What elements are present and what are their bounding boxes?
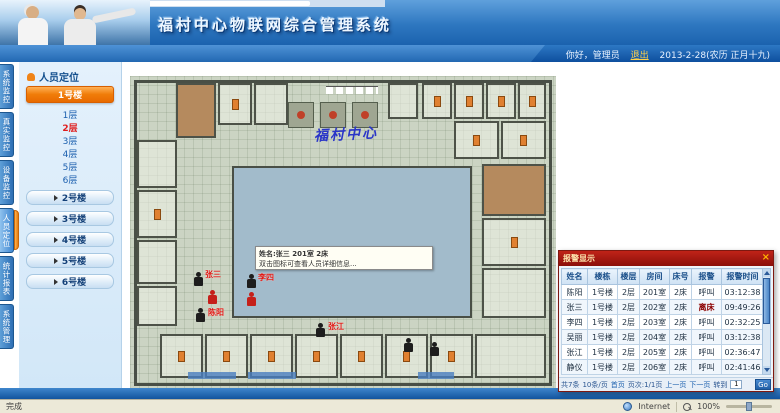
first-page-link[interactable]: 首页: [611, 380, 625, 390]
building-caption: 福村中心: [314, 122, 379, 145]
app-window: 福村中心物联网综合管理系统 你好，管理员 退出 2013-2-28(农历 正月十…: [0, 0, 780, 413]
scroll-up-icon[interactable]: [763, 269, 770, 277]
building-2-button[interactable]: 2号楼: [26, 190, 114, 205]
alarm-table-header: 姓名楼栋楼层房间床号报警报警时间: [562, 269, 764, 285]
status-bar: 完成 Internet 100%: [0, 399, 780, 413]
page-title: 福村中心物联网综合管理系统: [158, 14, 392, 35]
scrollbar-thumb[interactable]: [763, 278, 770, 324]
prev-page-link[interactable]: 上一页: [665, 380, 686, 390]
person-marker-label: 李四: [258, 272, 274, 283]
table-row[interactable]: 静仪1号楼2层206室2床呼叫02:41:46: [562, 360, 764, 375]
room-label-strip: [188, 372, 236, 379]
table-row[interactable]: 张江1号楼2层205室2床呼叫02:36:47: [562, 345, 764, 360]
person-marker[interactable]: [194, 272, 203, 286]
zoom-level: 100%: [697, 402, 720, 411]
nav-tab-system-monitor[interactable]: 系统监控: [0, 64, 14, 109]
person-marker-label: 张三: [205, 269, 221, 280]
floor-item-6[interactable]: 6层: [26, 173, 114, 185]
room: [482, 218, 546, 266]
bed-icon: [178, 351, 185, 362]
total-count: 共7条: [561, 380, 579, 390]
table-icon: [288, 102, 314, 128]
bed-icon: [466, 96, 473, 107]
zone-label: Internet: [638, 402, 670, 411]
building-4-button[interactable]: 4号楼: [26, 232, 114, 247]
floor-item-2[interactable]: 2层: [26, 121, 114, 133]
room: [501, 121, 546, 159]
room: [340, 334, 383, 378]
logout-link[interactable]: 退出: [631, 51, 649, 61]
alarm-popup-titlebar[interactable]: 报警显示 ×: [559, 251, 773, 266]
pagination-bar: 共7条 10条/页 首页 页次:1/1页 上一页 下一页 转到 Go: [559, 377, 773, 391]
plan-cabinets: [326, 86, 378, 94]
room: [388, 83, 418, 119]
tooltip-line2: 双击图标可查看人员详细信息...: [259, 259, 429, 269]
room: [137, 240, 177, 284]
person-marker-alarm[interactable]: [208, 290, 217, 304]
bed-icon: [154, 209, 161, 220]
person-marker-label: 张江: [328, 321, 344, 332]
person-marker[interactable]: [430, 342, 439, 356]
bed-icon: [498, 96, 505, 107]
room: [486, 83, 516, 119]
date-text: 2013-2-28(农历 正月十九): [660, 51, 770, 61]
zoom-slider-thumb[interactable]: [746, 402, 752, 411]
alarm-popup: 报警显示 × 姓名楼栋楼层房间床号报警报警时间 陈阳1号楼2层201室2床呼叫0…: [558, 250, 774, 392]
next-page-link[interactable]: 下一页: [689, 380, 710, 390]
courtyard-area: [232, 166, 472, 318]
room: [295, 334, 338, 378]
greeting-text: 你好，管理员: [566, 51, 620, 61]
table-row[interactable]: 陈阳1号楼2层201室2床呼叫03:12:38: [562, 285, 764, 300]
bed-icon: [223, 351, 230, 362]
header-photo: [0, 0, 150, 45]
building-panel: 人员定位 1号楼 1层 2层 3层 4层 5层 6层 2号楼 3号楼 4号楼 5…: [19, 62, 122, 388]
person-marker[interactable]: [247, 274, 256, 288]
person-marker-alarm[interactable]: [247, 292, 256, 306]
room: [422, 83, 452, 119]
room: [454, 121, 499, 159]
globe-icon: [623, 402, 632, 411]
photo-person2-body: [64, 19, 96, 45]
scroll-down-icon[interactable]: [763, 366, 770, 374]
person-marker[interactable]: [196, 308, 205, 322]
arrow-icon: [54, 258, 58, 264]
room: [176, 83, 216, 138]
room: [482, 164, 546, 216]
room: [475, 334, 546, 378]
nav-tab-person-locate[interactable]: 人员定位: [0, 208, 14, 253]
page-info: 页次:1/1页: [628, 380, 663, 390]
room: [518, 83, 546, 119]
room: [482, 268, 546, 318]
room-label-strip: [248, 372, 296, 379]
zoom-icon: [683, 403, 691, 411]
bed-icon: [313, 351, 320, 362]
arrow-icon: [54, 195, 58, 201]
person-marker[interactable]: [404, 338, 413, 352]
app-header: 福村中心物联网综合管理系统: [0, 0, 780, 45]
room: [137, 190, 177, 238]
room: [137, 286, 177, 326]
per-page: 10条/页: [582, 380, 607, 390]
bed-icon: [448, 351, 455, 362]
zoom-slider[interactable]: [726, 405, 772, 408]
table-row[interactable]: 吴丽1号楼2层204室2床呼叫03:12:38: [562, 330, 764, 345]
table-scrollbar[interactable]: [762, 268, 771, 375]
go-button[interactable]: Go: [755, 379, 771, 390]
person-marker[interactable]: [316, 323, 325, 337]
nav-tab-live-monitor[interactable]: 真实监控: [0, 112, 14, 157]
building-3-button[interactable]: 3号楼: [26, 211, 114, 226]
building-6-button[interactable]: 6号楼: [26, 274, 114, 289]
building-5-button[interactable]: 5号楼: [26, 253, 114, 268]
alarm-table: 姓名楼栋楼层房间床号报警报警时间 陈阳1号楼2层201室2床呼叫03:12:38…: [561, 268, 764, 375]
photo-person2-arm: [92, 8, 136, 24]
table-row[interactable]: 张三1号楼2层202室2床离床09:49:26: [562, 300, 764, 315]
bed-icon: [403, 351, 410, 362]
room: [218, 83, 252, 125]
alarm-popup-title: 报警显示: [563, 253, 595, 264]
bed-icon: [520, 135, 527, 146]
nav-tab-device-monitor[interactable]: 设备监控: [0, 160, 14, 205]
close-icon[interactable]: ×: [762, 252, 770, 263]
bed-icon: [268, 351, 275, 362]
table-row[interactable]: 李四1号楼2层203室2床呼叫02:32:25: [562, 315, 764, 330]
tooltip-line1: 姓名:张三 201室 2床: [259, 249, 429, 259]
building-1-button[interactable]: 1号楼: [26, 86, 114, 103]
panel-title: 人员定位: [27, 69, 79, 84]
person-marker-label: 陈阳: [208, 307, 224, 318]
bed-icon: [473, 135, 480, 146]
floor-item-5[interactable]: 5层: [26, 160, 114, 172]
room: [454, 83, 484, 119]
room-label-strip: [418, 372, 454, 379]
room: [137, 140, 177, 188]
arrow-icon: [54, 279, 58, 285]
arrow-icon: [54, 237, 58, 243]
goto-label: 转到: [713, 380, 727, 390]
floor-item-1[interactable]: 1层: [26, 108, 114, 120]
floor-item-3[interactable]: 3层: [26, 134, 114, 146]
person-icon: [27, 73, 35, 81]
goto-page-input[interactable]: [730, 380, 742, 389]
bed-icon: [358, 351, 365, 362]
bed-icon: [511, 237, 518, 248]
divider: [676, 402, 677, 412]
user-bar: 你好，管理员 退出 2013-2-28(农历 正月十九): [0, 45, 780, 62]
bed-icon: [529, 96, 536, 107]
status-text: 完成: [6, 401, 22, 412]
photo-person-body: [18, 18, 48, 45]
nav-tab-system-manage[interactable]: 系统管理: [0, 304, 14, 349]
bed-icon: [232, 99, 239, 110]
bed-icon: [434, 96, 441, 107]
arrow-icon: [54, 216, 58, 222]
floor-item-4[interactable]: 4层: [26, 147, 114, 159]
nav-tab-report[interactable]: 统计报表: [0, 256, 14, 301]
room: [254, 83, 288, 125]
floor-plan[interactable]: 福村中心 张三 李四 陈阳 张江 姓名:张三 201室 2床 双击图标可查看人员…: [130, 76, 556, 390]
marker-tooltip: 姓名:张三 201室 2床 双击图标可查看人员详细信息...: [255, 246, 433, 270]
